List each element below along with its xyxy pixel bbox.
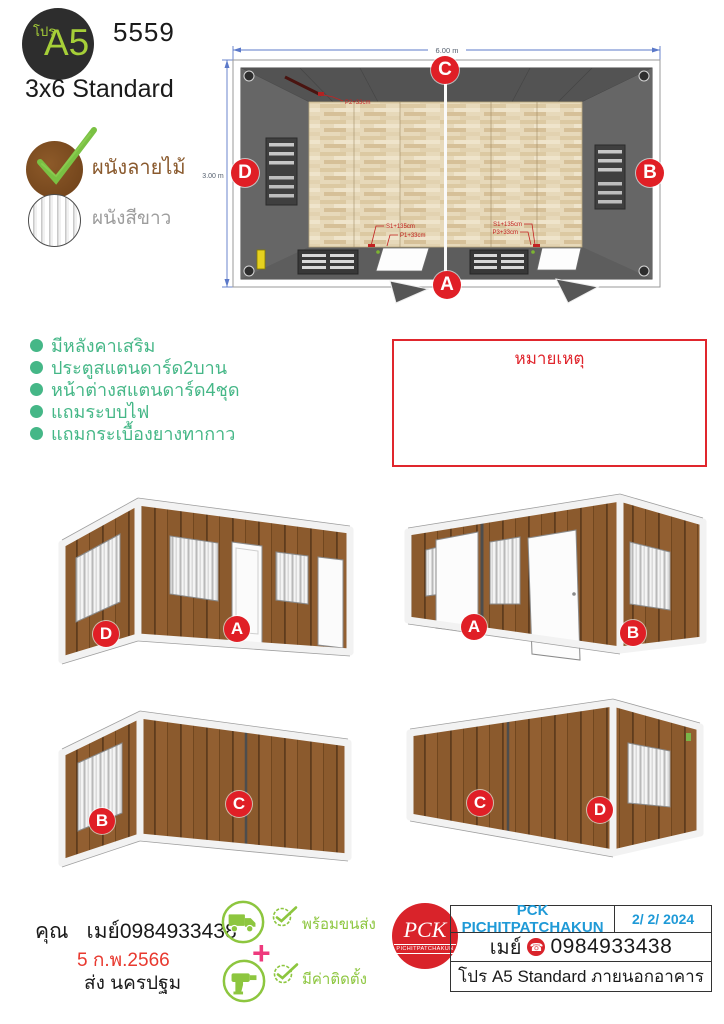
threshold-marker-left (376, 250, 380, 254)
front-window-grille-right (470, 250, 528, 274)
white-wall-label: ผนังสีขาว (92, 203, 171, 233)
customer-name-phone: เมย์0984933438 (87, 920, 237, 943)
view4-d-tag: D (587, 797, 613, 823)
company-date: 2/ 2/ 2024 (615, 911, 711, 927)
model-size-title: 3x6 Standard (25, 75, 174, 104)
pck-company-logo: PCK PICHITPATCHAKUN (392, 903, 458, 969)
window-a2 (490, 537, 520, 604)
window-a1 (170, 536, 218, 601)
plan-side-d-tag: D (231, 159, 259, 187)
bullet-icon (30, 361, 43, 374)
view3-c-tag: C (226, 791, 252, 817)
company-table: PCK PICHITPATCHAKUN 2/ 2/ 2024 เมย์ ☎ 09… (450, 905, 712, 992)
front-door-opening-right (537, 248, 581, 270)
annotation-s1a: S1+135cm (386, 224, 415, 230)
pck-monogram: PCK (404, 919, 447, 941)
window-b (630, 542, 670, 610)
plan-side-a-tag: A (433, 271, 461, 299)
view2-b-tag: B (620, 620, 646, 646)
bullet-icon (30, 339, 43, 352)
feature-item: แถมกระเบื้องยางทากาว (30, 422, 240, 444)
logo-model-text: A5 (44, 22, 89, 64)
customer-line: คุณเมย์0984933438 (35, 915, 237, 948)
bullet-icon (30, 427, 43, 440)
company-row-1: PCK PICHITPATCHAKUN 2/ 2/ 2024 (451, 906, 711, 933)
view1-a-tag: A (224, 616, 250, 642)
check-icon (272, 905, 299, 928)
bullet-icon (30, 405, 43, 418)
door-a2 (318, 557, 343, 648)
feature-list: มีหลังคาเสริม ประตูสแตนดาร์ด2บาน หน้าต่า… (30, 334, 240, 444)
view-front-right (398, 482, 715, 682)
meter-box (686, 733, 691, 741)
check-icon (273, 962, 300, 985)
service-install-label: มีค่าติดตั้ง (302, 967, 367, 991)
white-wall-swatch (28, 194, 81, 247)
company-row-3: โปร A5 Standard ภายนอกอาคาร (451, 962, 711, 991)
delivery-destination: ส่ง นครปฐม (84, 968, 181, 998)
company-phone-number: 0984933438 (550, 935, 672, 959)
annotation-p3: P3+33cm (492, 230, 518, 236)
annotation-p1: P1+33cm (400, 233, 426, 239)
wood-wall-label: ผนังลายไม้ (92, 151, 186, 183)
beam-end-mark (318, 92, 324, 96)
bullet-icon (30, 383, 43, 396)
door-knob (572, 592, 576, 596)
view4-c-tag: C (467, 790, 493, 816)
quote-number: 5559 (113, 17, 175, 48)
front-window-grille-left (298, 250, 358, 274)
view-front-left (50, 482, 360, 677)
plan-side-c-tag: C (431, 56, 459, 84)
plan-height-dim: 3.00 m (202, 173, 224, 180)
customer-honorific: คุณ (35, 920, 69, 943)
annotation-s1b: S1+135cm (493, 222, 522, 228)
company-row-2: เมย์ ☎ 0984933438 (451, 933, 711, 962)
threshold-marker-right (531, 250, 535, 254)
view1-d-tag: D (93, 621, 119, 647)
service-delivery-label: พร้อมขนส่ง (302, 912, 376, 936)
plan-side-b-tag: B (636, 159, 664, 187)
note-title: หมายเหตุ (394, 345, 705, 372)
phone-icon: ☎ (527, 938, 545, 956)
note-box: หมายเหตุ (392, 339, 707, 467)
annotation-p2: P2+33cm (345, 100, 371, 106)
view-back-right (398, 685, 715, 885)
drill-icon (221, 958, 267, 1004)
feature-text: แถมกระเบื้องยางทากาว (51, 419, 235, 448)
product-description: โปร A5 Standard ภายนอกอาคาร (458, 963, 704, 990)
view3-b-tag: B (89, 808, 115, 834)
electric-panel (257, 250, 265, 269)
left-wall-window (266, 138, 297, 205)
company-name: PCK PICHITPATCHAKUN (451, 906, 615, 932)
contact-person: เมย์ (490, 931, 522, 963)
plan-width-dim: 6.00 m (436, 46, 459, 55)
front-door-opening-left (376, 248, 429, 271)
view2-a-tag: A (461, 614, 487, 640)
window-d (628, 743, 670, 807)
flyer-page: โปร A5 5559 3x6 Standard ผนังลายไม้ ผนัง… (0, 0, 724, 1024)
floor-plan: 6.00 m 3.00 m (200, 40, 670, 315)
pck-band-text: PICHITPATCHAKUN (394, 944, 455, 954)
window-a2 (276, 552, 308, 604)
view-back-left (50, 685, 360, 885)
right-wall-window (595, 145, 625, 209)
